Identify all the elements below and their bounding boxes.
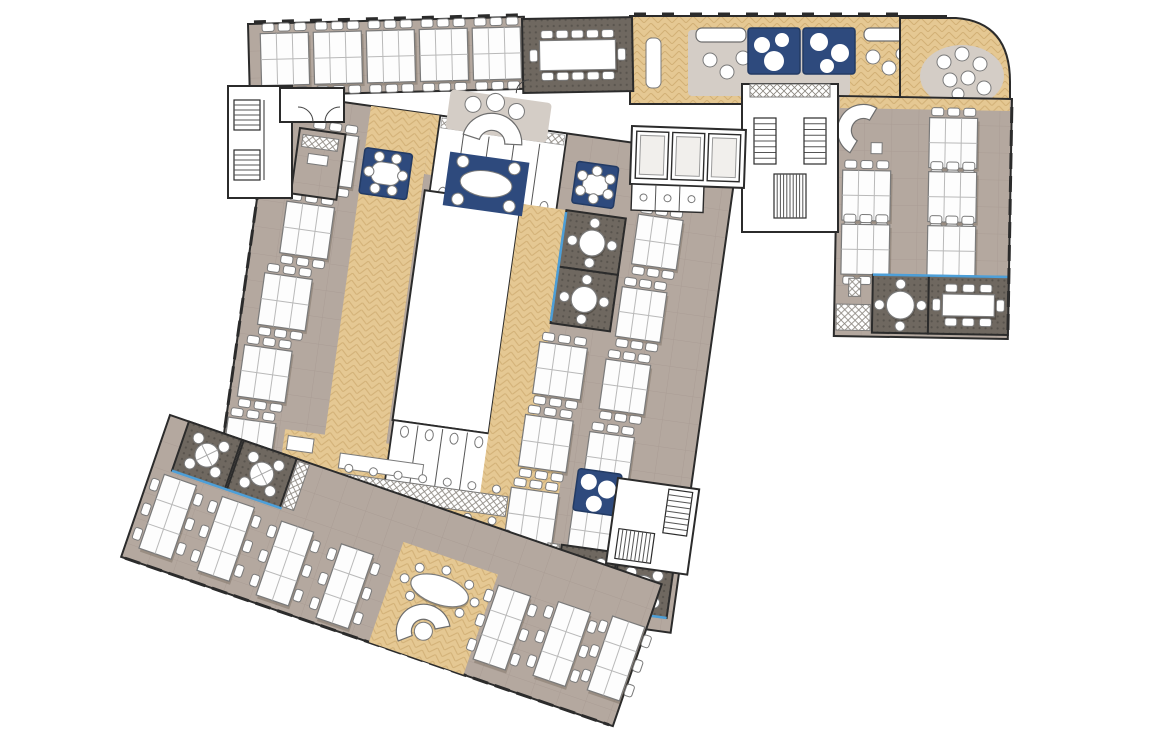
desk-bank bbox=[366, 20, 418, 93]
bench bbox=[750, 84, 830, 97]
floor-plan-page bbox=[0, 0, 1170, 738]
sofa bbox=[696, 28, 746, 42]
desk-bank bbox=[472, 17, 524, 90]
stair-flight bbox=[234, 100, 260, 130]
stair-flight bbox=[615, 529, 655, 564]
stair-flight bbox=[754, 118, 776, 164]
stair-flight bbox=[774, 174, 806, 218]
cafe-stool bbox=[977, 81, 991, 95]
presentation-screen bbox=[646, 38, 661, 88]
stair-flight bbox=[234, 150, 260, 180]
printer bbox=[849, 278, 861, 296]
desk-bank bbox=[419, 18, 471, 91]
cafe-stool bbox=[937, 55, 951, 69]
stair-south bbox=[606, 478, 699, 575]
open-office-north bbox=[248, 15, 526, 96]
cafe-stool bbox=[961, 71, 975, 85]
bench bbox=[836, 304, 870, 331]
desk-bank bbox=[260, 22, 312, 95]
side-table bbox=[866, 50, 880, 64]
stair-flight bbox=[804, 118, 826, 164]
wing-east bbox=[834, 96, 1012, 339]
corner-lounge bbox=[900, 18, 1010, 107]
blue-booth bbox=[748, 28, 800, 74]
stair-core-north bbox=[742, 84, 838, 232]
side-table bbox=[703, 53, 717, 67]
elevator-car bbox=[671, 132, 705, 180]
wc-stalls bbox=[631, 184, 704, 212]
blue-booth bbox=[803, 28, 855, 74]
copy-room bbox=[291, 128, 346, 200]
elevator-car bbox=[635, 131, 669, 179]
side-table bbox=[882, 61, 896, 75]
conference-room-north bbox=[515, 17, 633, 93]
elevator-car bbox=[707, 134, 741, 182]
side-table bbox=[720, 65, 734, 79]
desk-bank bbox=[313, 21, 365, 94]
copier bbox=[307, 153, 328, 166]
blue-meeting-table bbox=[571, 161, 618, 208]
cafe-stool bbox=[973, 57, 987, 71]
floor-plan-canvas bbox=[0, 0, 1170, 738]
blue-meeting-table bbox=[359, 148, 413, 200]
cafe-stool bbox=[955, 47, 969, 61]
conference-table bbox=[529, 29, 626, 81]
side-table bbox=[871, 143, 882, 154]
kitchen-cabinet bbox=[286, 436, 314, 453]
cafe-stool bbox=[943, 73, 957, 87]
